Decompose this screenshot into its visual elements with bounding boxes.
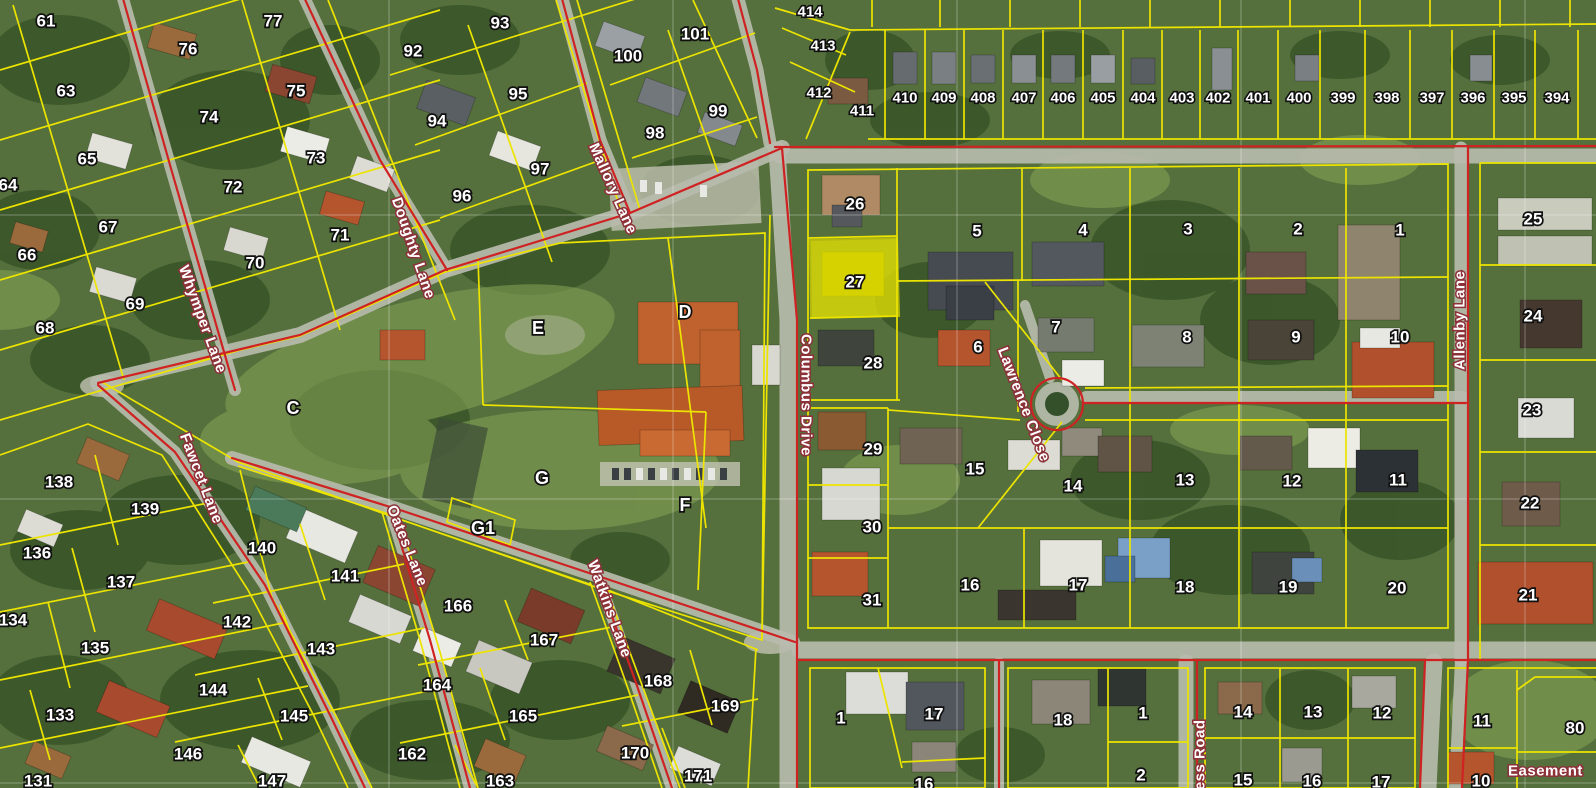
parcel-label: 395 xyxy=(1501,90,1526,107)
parcel-label: 2 xyxy=(1293,220,1302,239)
parcel-label: 72 xyxy=(224,178,243,197)
block-letter-label: D xyxy=(679,302,692,322)
parcel-label: 5 xyxy=(972,222,981,241)
parcel-label: 162 xyxy=(398,745,426,764)
parcel-label: 133 xyxy=(46,706,74,725)
parcel-label: 134 xyxy=(0,611,28,630)
parcel-label: 75 xyxy=(287,82,306,101)
parcel-label: 28 xyxy=(864,354,883,373)
parcel-label: 143 xyxy=(307,640,335,659)
parcel-label: 171 xyxy=(684,767,712,786)
parcel-label: 13 xyxy=(1176,471,1195,490)
parcel-label: 14 xyxy=(1234,703,1253,722)
parcel-label: 64 xyxy=(0,176,18,195)
parcel-label: 396 xyxy=(1460,90,1485,107)
map-canvas[interactable]: 61 77 76 63 75 74 65 73 64 72 67 71 66 7… xyxy=(0,0,1596,788)
block-letter-label: C xyxy=(287,398,300,418)
parcel-label: 7 xyxy=(1051,318,1060,337)
parcel-label: 411 xyxy=(850,103,874,120)
parcel-label: 405 xyxy=(1090,90,1115,107)
parcel-label: 101 xyxy=(681,25,709,44)
parcel-label: 145 xyxy=(280,707,308,726)
street-label-allenby: Allenby Lane xyxy=(1452,271,1469,370)
parcel-label: 409 xyxy=(931,90,956,107)
parcel-label: 11 xyxy=(1473,712,1491,731)
parcel-label: 404 xyxy=(1130,90,1156,107)
parcel-label: 71 xyxy=(331,226,350,245)
parcel-label: 1 xyxy=(1138,704,1147,723)
parcel-label: 26 xyxy=(846,195,865,214)
parcel-label: 61 xyxy=(37,12,56,31)
parcel-label: 29 xyxy=(864,440,883,459)
parcel-label: 168 xyxy=(644,672,672,691)
parcel-label: 139 xyxy=(131,500,159,519)
map-viewport[interactable]: 61 77 76 63 75 74 65 73 64 72 67 71 66 7… xyxy=(0,0,1596,788)
easement-label: Easement xyxy=(1508,763,1583,780)
parcel-label: 16 xyxy=(1303,772,1322,788)
parcel-label: 70 xyxy=(246,254,265,273)
parcel-label: 23 xyxy=(1523,401,1542,420)
parcel-label: 165 xyxy=(509,707,537,726)
parcel-label: 164 xyxy=(423,676,452,695)
parcel-label: 18 xyxy=(1176,578,1195,597)
parcel-label: 397 xyxy=(1419,90,1444,107)
parcel-label: 135 xyxy=(81,639,109,658)
parcel-label: 73 xyxy=(307,149,326,168)
parcel-label: 403 xyxy=(1169,90,1194,107)
parcel-label: 12 xyxy=(1373,704,1392,723)
parcel-label: 10 xyxy=(1472,772,1491,788)
parcel-label: 399 xyxy=(1330,90,1355,107)
parcel-label: 65 xyxy=(78,150,97,169)
parcel-label: 100 xyxy=(614,47,642,66)
parcel-label: 19 xyxy=(1279,578,1298,597)
parcel-label: 15 xyxy=(1234,771,1253,788)
parcel-label: 74 xyxy=(200,108,219,127)
parcel-label: 67 xyxy=(99,218,118,237)
parcel-label: 96 xyxy=(453,187,472,206)
parcel-label: 137 xyxy=(107,573,135,592)
parcel-label: 17 xyxy=(1069,576,1088,595)
parcel-label: 98 xyxy=(646,124,665,143)
parcel-label: 144 xyxy=(199,681,228,700)
parcel-label: 413 xyxy=(810,38,835,55)
parcel-label: 140 xyxy=(248,539,276,558)
street-label-columbus: Columbus Drive xyxy=(798,334,815,456)
parcel-label: 6 xyxy=(973,338,982,357)
block-letter-label: G xyxy=(535,468,549,488)
parcel-label: 407 xyxy=(1011,90,1036,107)
parcel-label: 16 xyxy=(915,775,934,788)
parcel-label: 170 xyxy=(621,744,649,763)
parcel-label: 141 xyxy=(331,567,359,586)
parcel-label: 15 xyxy=(966,460,985,479)
parcel-label: 92 xyxy=(404,42,423,61)
parcel-label: 394 xyxy=(1544,90,1570,107)
parcel-label: 20 xyxy=(1388,579,1407,598)
parcel-label: 24 xyxy=(1524,307,1543,326)
parcel-label: 12 xyxy=(1283,472,1302,491)
parcel-label: 69 xyxy=(126,295,145,314)
parcel-label: 410 xyxy=(892,90,917,107)
parcel-label: 167 xyxy=(530,631,558,650)
parcel-label: 166 xyxy=(444,597,472,616)
parcel-label: 8 xyxy=(1182,328,1191,347)
parcel-label: 146 xyxy=(174,745,202,764)
parcel-label: 93 xyxy=(491,14,510,33)
block-letter-label: E xyxy=(532,318,544,338)
parcel-label: 408 xyxy=(970,90,995,107)
parcel-label: 68 xyxy=(36,319,55,338)
parcel-label: 31 xyxy=(863,591,882,610)
parcel-label: 2 xyxy=(1136,766,1145,785)
parcel-label: 414 xyxy=(797,4,823,21)
parcel-label: 406 xyxy=(1050,90,1075,107)
parcel-label: 76 xyxy=(179,40,198,59)
parcel-label: 63 xyxy=(57,82,76,101)
parcel-label: 16 xyxy=(961,576,980,595)
parcel-label: 94 xyxy=(428,112,447,131)
parcel-label: 131 xyxy=(24,772,52,788)
parcel-label: 138 xyxy=(45,473,73,492)
parcel-label: 4 xyxy=(1078,221,1088,240)
parcel-label: 412 xyxy=(806,85,831,102)
parcel-label: 95 xyxy=(509,85,528,104)
parcel-label: 147 xyxy=(258,772,286,788)
parcel-label: 66 xyxy=(18,246,37,265)
parcel-label-highlighted[interactable]: 27 xyxy=(846,273,865,292)
street-label-cess-road: cess Road xyxy=(1192,719,1209,788)
parcel-label: 9 xyxy=(1291,328,1300,347)
parcel-label: 13 xyxy=(1304,703,1323,722)
parcel-label: 1 xyxy=(836,709,845,728)
parcel-label: 142 xyxy=(223,613,251,632)
parcel-label: 402 xyxy=(1205,90,1230,107)
block-letter-label: F xyxy=(680,495,691,515)
parcel-label: 14 xyxy=(1064,477,1083,496)
parcel-label: 21 xyxy=(1519,586,1538,605)
parcel-label: 10 xyxy=(1391,328,1410,347)
parcel-label: 99 xyxy=(709,102,728,121)
parcel-label: 17 xyxy=(1372,773,1391,788)
parcel-label: 18 xyxy=(1054,711,1073,730)
parcel-label: 398 xyxy=(1374,90,1399,107)
parcel-label: 77 xyxy=(264,12,283,31)
parcel-label: 17 xyxy=(925,705,944,724)
parcel-label: 400 xyxy=(1286,90,1311,107)
block-letter-label: G1 xyxy=(471,518,495,538)
parcel-label: 97 xyxy=(531,160,550,179)
parcel-label: 1 xyxy=(1395,221,1404,240)
parcel-label: 22 xyxy=(1521,494,1540,513)
parcel-label: 401 xyxy=(1245,90,1270,107)
parcel-label: 169 xyxy=(711,697,739,716)
parcel-label: 3 xyxy=(1183,220,1192,239)
parcel-label: 80 xyxy=(1566,719,1585,738)
parcel-label: 163 xyxy=(486,772,514,788)
parcel-label: 11 xyxy=(1389,471,1407,490)
parcel-label: 136 xyxy=(23,544,51,563)
parcel-label: 25 xyxy=(1524,210,1543,229)
parcel-label: 30 xyxy=(863,518,882,537)
